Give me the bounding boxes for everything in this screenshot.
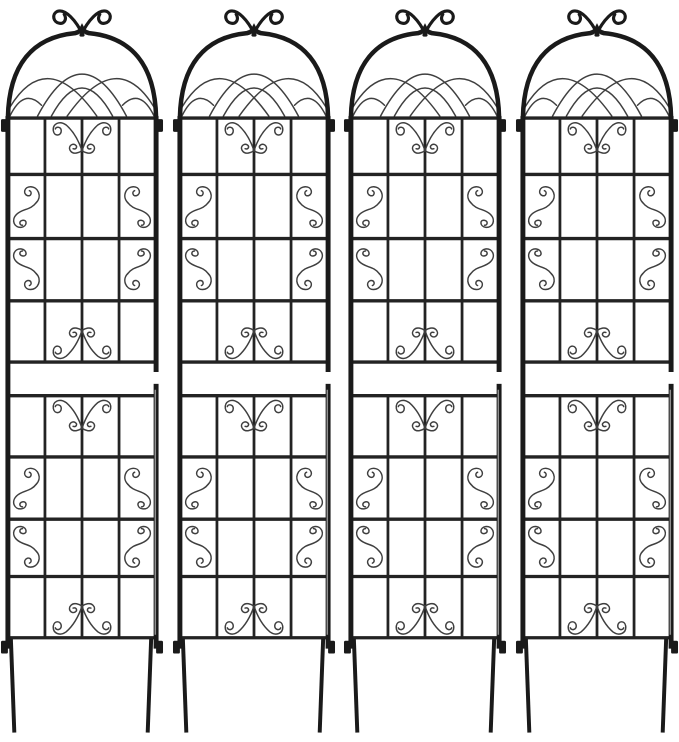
grid-vertical-bars	[217, 118, 291, 638]
gothic-lattice-arch	[10, 74, 154, 116]
arch-dome	[523, 28, 671, 118]
trellis-panel-1	[0, 0, 164, 742]
gothic-lattice-arch	[525, 74, 669, 116]
rail-reflection-notch	[153, 372, 160, 384]
double-curl-finial	[54, 11, 111, 35]
trellis-set	[0, 0, 679, 742]
rail-reflection-notch	[496, 372, 503, 384]
arch-dome	[351, 28, 499, 118]
double-curl-finial	[569, 11, 626, 35]
product-image	[0, 0, 679, 742]
arch-dome	[8, 28, 156, 118]
double-curl-finial	[397, 11, 454, 35]
grid-vertical-bars	[388, 118, 462, 638]
rail-reflection-notch	[668, 372, 675, 384]
ground-stakes	[11, 639, 151, 733]
trellis-panel-4	[515, 0, 679, 742]
trellis-panel-2	[172, 0, 336, 742]
double-curl-finial	[225, 11, 282, 35]
gothic-lattice-arch	[353, 74, 497, 116]
ground-stakes	[526, 639, 666, 733]
ground-stakes	[183, 639, 323, 733]
ground-stakes	[354, 639, 494, 733]
rail-reflection-notch	[325, 372, 332, 384]
arch-dome	[180, 28, 328, 118]
gothic-lattice-arch	[182, 74, 326, 116]
trellis-panel-3	[343, 0, 507, 742]
grid-vertical-bars	[45, 118, 119, 638]
grid-vertical-bars	[560, 118, 634, 638]
